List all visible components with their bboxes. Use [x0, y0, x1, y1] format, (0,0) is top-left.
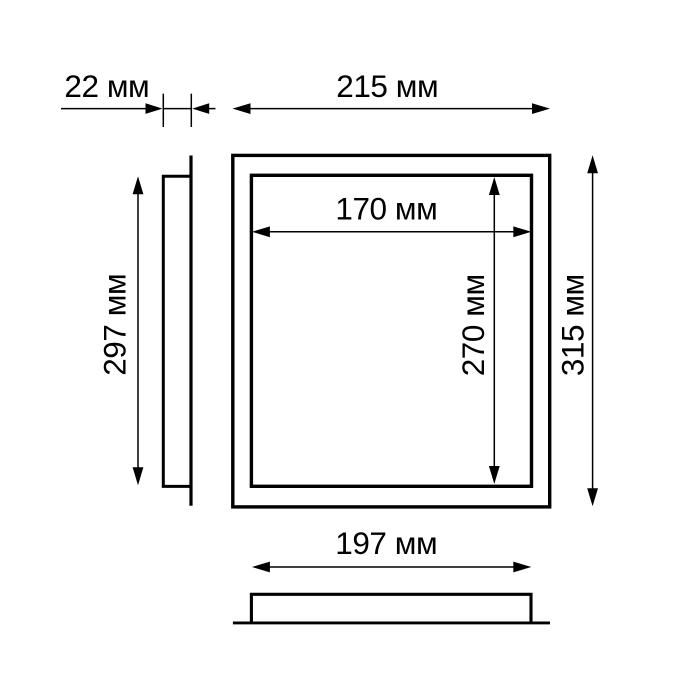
svg-text:197 мм: 197 мм [335, 525, 437, 561]
svg-text:270 мм: 270 мм [455, 274, 491, 376]
svg-text:22 мм: 22 мм [64, 68, 149, 104]
svg-text:170 мм: 170 мм [335, 191, 437, 227]
svg-text:315 мм: 315 мм [554, 274, 590, 376]
svg-text:215 мм: 215 мм [336, 68, 438, 104]
svg-text:297 мм: 297 мм [97, 274, 133, 376]
